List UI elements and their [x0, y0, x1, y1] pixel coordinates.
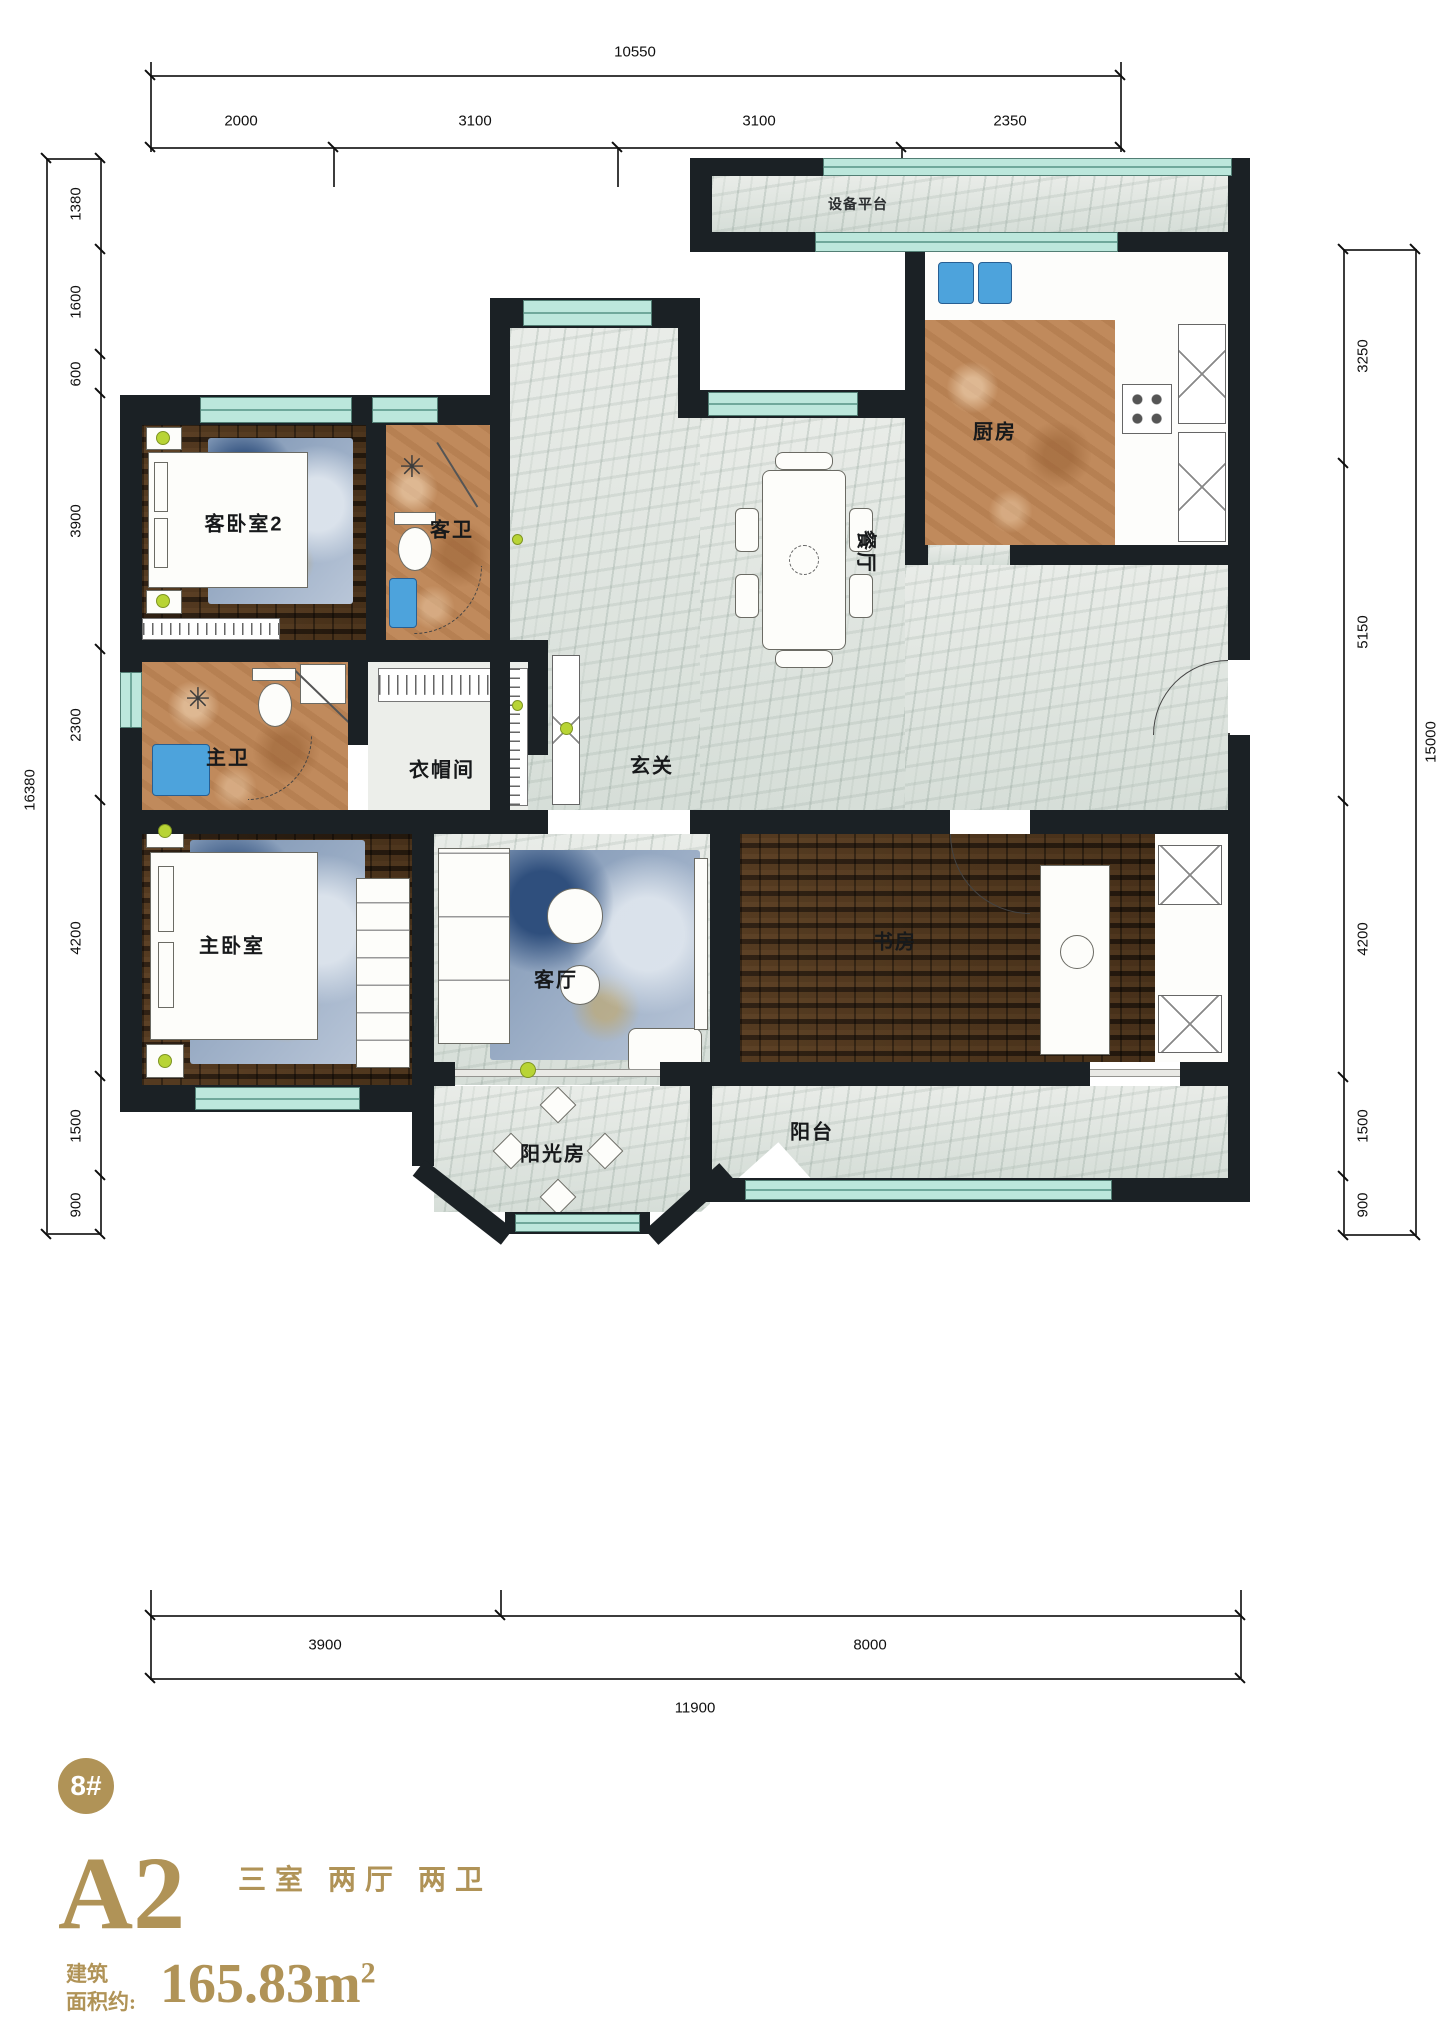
dim-right-seg: 900	[1355, 1192, 1372, 1217]
room-label-kitchen: 厨房	[973, 416, 1017, 445]
wall	[1228, 252, 1250, 660]
area-number: 165.83m	[160, 1953, 361, 2015]
plant-icon	[158, 1054, 172, 1068]
wall	[1118, 232, 1250, 252]
bookshelf	[1158, 995, 1222, 1053]
wardrobe	[356, 878, 410, 1068]
wall	[905, 545, 928, 565]
wall	[1010, 545, 1250, 565]
room-label-guest-bath: 客卫	[430, 514, 474, 543]
dim-ext	[1343, 1234, 1415, 1236]
wall	[412, 1086, 434, 1166]
floor-lamp-icon	[520, 1062, 536, 1078]
window	[745, 1180, 1112, 1200]
window	[523, 300, 652, 326]
toilet-tank	[252, 668, 296, 681]
dim-line	[150, 75, 1120, 77]
window	[823, 158, 1232, 176]
wall	[1180, 1062, 1250, 1086]
window	[372, 397, 438, 423]
dim-right-seg: 5150	[1355, 615, 1372, 648]
tv-console	[694, 858, 708, 1030]
dim-right-seg: 4200	[1355, 922, 1372, 955]
floorplan-page: 10550 2000 3100 3100 2350 16380 1380 160…	[0, 0, 1440, 2036]
shower-icon: ✳	[185, 685, 210, 715]
wall	[348, 662, 368, 745]
wall	[1030, 810, 1250, 834]
stove-icon	[1122, 384, 1172, 434]
dim-top-seg: 3100	[458, 113, 491, 130]
dim-top-seg: 2350	[993, 113, 1026, 130]
dim-ext	[46, 158, 100, 160]
dim-right-seg: 1500	[1355, 1109, 1372, 1142]
desk-chair	[1060, 935, 1094, 969]
area-label-line2: 面积约:	[66, 1988, 136, 2016]
dining-chair	[735, 574, 759, 618]
dim-top-seg: 3100	[742, 113, 775, 130]
dining-chair	[775, 650, 833, 668]
dim-ext	[1240, 1590, 1242, 1678]
room-label-foyer: 玄关	[630, 750, 674, 779]
floor-kitchen	[925, 320, 1115, 545]
dim-left-seg: 1380	[68, 187, 85, 220]
dim-ext	[617, 147, 619, 187]
wall	[690, 232, 815, 252]
wall	[412, 810, 434, 1085]
wall	[710, 810, 740, 1085]
dim-line	[46, 158, 48, 1234]
dim-ext	[46, 1233, 100, 1235]
plant-icon	[156, 594, 170, 608]
wall	[905, 252, 925, 565]
toilet-bowl	[258, 683, 292, 727]
wall	[490, 298, 510, 810]
dim-line	[1415, 249, 1417, 1235]
room-label-master-bedroom: 主卧室	[199, 930, 265, 959]
dim-left-seg: 900	[68, 1192, 85, 1217]
plant-icon	[156, 431, 170, 445]
dim-line	[150, 147, 1120, 149]
dim-left-seg: 2300	[68, 708, 85, 741]
area-exponent: 2	[361, 1956, 376, 1989]
room-label-sunroom: 阳光房	[520, 1138, 586, 1167]
balcony-door-threshold	[1090, 1069, 1180, 1077]
dining-chair	[775, 452, 833, 470]
dim-line	[100, 158, 102, 1234]
dim-ext	[500, 1590, 502, 1615]
area-label-line1: 建筑	[66, 1960, 136, 1988]
wall	[120, 395, 142, 672]
dim-left-seg: 600	[68, 361, 85, 386]
kitchen-sink	[938, 262, 974, 304]
layout-description: 三室 两厅 两卫	[238, 1858, 492, 1898]
wall	[1228, 735, 1250, 1090]
chandelier-icon	[789, 545, 819, 575]
toilet-bowl	[398, 527, 432, 571]
kitchen-cabinet	[1178, 324, 1226, 424]
dim-ext	[150, 1590, 152, 1678]
building-badge: 8#	[58, 1758, 114, 1814]
room-label-equipment-platform: 设备平台	[828, 194, 888, 214]
floor-kitchen-opening	[928, 545, 1010, 565]
window	[708, 392, 858, 416]
dim-line	[150, 1678, 1240, 1680]
dim-left-seg: 1500	[68, 1109, 85, 1142]
wall	[740, 1062, 1090, 1086]
dim-ext	[1343, 249, 1415, 251]
bedroom2-wardrobe	[142, 618, 280, 640]
dim-line	[1343, 249, 1345, 1235]
bath-sink	[389, 578, 417, 628]
wall	[660, 1062, 740, 1086]
dim-top-total: 10550	[614, 44, 656, 61]
pillow	[154, 518, 168, 568]
dim-bottom-seg: 8000	[853, 1637, 886, 1654]
pillow	[158, 866, 174, 932]
wall	[366, 425, 386, 640]
hanger-rack	[378, 668, 508, 702]
dim-left-seg: 1600	[68, 285, 85, 318]
sliding-door-threshold	[455, 1069, 660, 1077]
dim-top-seg: 2000	[224, 113, 257, 130]
sofa	[438, 848, 510, 1044]
dim-line	[150, 1615, 1240, 1617]
bookshelf	[1158, 845, 1222, 905]
dim-bottom-total: 11900	[675, 1700, 716, 1717]
wall	[678, 298, 700, 418]
wall	[740, 810, 950, 834]
bath-sink	[152, 744, 210, 796]
window	[120, 672, 142, 728]
coffee-table	[547, 888, 603, 944]
wall-light-icon	[512, 534, 523, 545]
dim-bottom-seg: 3900	[308, 1637, 341, 1654]
dim-left-seg: 4200	[68, 921, 85, 954]
room-label-master-bath: 主卫	[206, 742, 250, 771]
room-label-living: 客厅	[534, 964, 578, 993]
window	[515, 1214, 640, 1232]
wall	[120, 728, 142, 1112]
window	[815, 232, 1118, 252]
area-label: 建筑 面积约:	[66, 1960, 136, 2017]
kitchen-cabinet	[1178, 432, 1226, 542]
dim-ext	[333, 147, 335, 187]
room-label-balcony: 阳台	[790, 1116, 834, 1145]
kitchen-sink	[978, 262, 1012, 304]
area-value: 165.83m2	[160, 1956, 376, 2012]
wall	[690, 1086, 712, 1178]
dim-left-total: 16380	[22, 769, 39, 811]
dining-chair	[849, 574, 873, 618]
wall	[434, 1062, 455, 1086]
plant-icon	[158, 824, 172, 838]
dining-chair	[735, 508, 759, 552]
room-label-guest-bedroom2: 客卧室2	[204, 508, 283, 537]
shower-icon: ✳	[399, 453, 424, 483]
unit-name: A2	[58, 1845, 185, 1944]
window	[200, 397, 352, 423]
window	[195, 1087, 360, 1110]
wall	[120, 640, 548, 662]
room-label-dining: 餐厅	[854, 530, 883, 574]
wall	[120, 810, 548, 834]
wall-light-icon	[512, 700, 523, 711]
floor-equipment-platform	[712, 176, 1228, 232]
pillow	[158, 942, 174, 1008]
lamp-icon	[560, 722, 573, 735]
dim-right-seg: 3250	[1355, 339, 1372, 372]
wall	[528, 640, 548, 755]
pillow	[154, 462, 168, 512]
dim-right-total: 15000	[1423, 721, 1440, 763]
room-label-study: 书房	[873, 926, 917, 955]
dim-left-seg: 3900	[68, 504, 85, 537]
room-label-cloakroom: 衣帽间	[409, 754, 475, 783]
